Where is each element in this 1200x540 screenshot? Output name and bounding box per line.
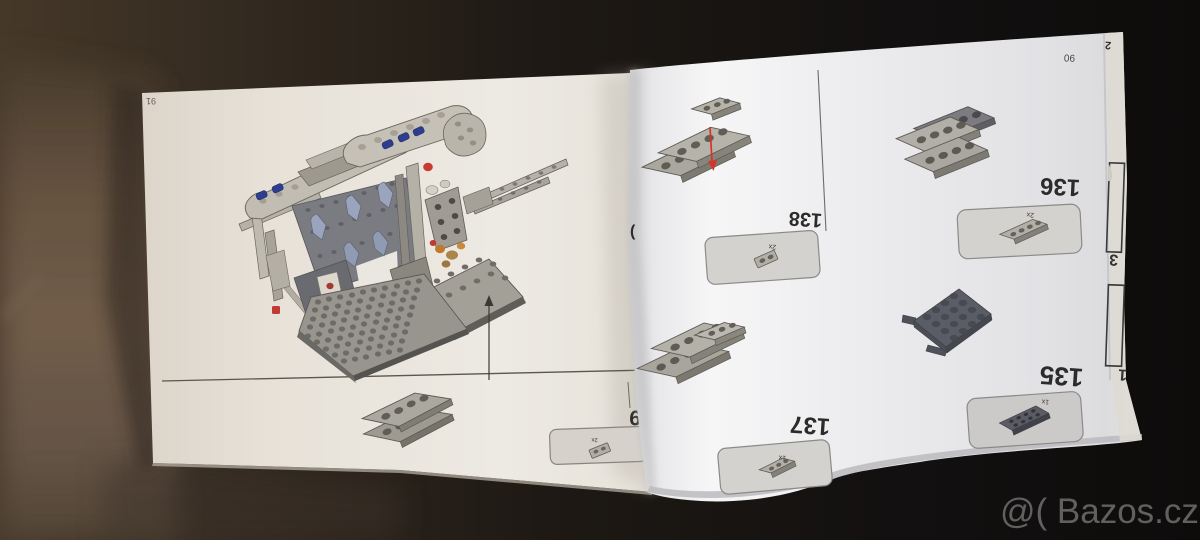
svg-text:1x: 1x <box>778 453 786 461</box>
svg-text:137: 137 <box>789 410 831 440</box>
svg-text:2x: 2x <box>591 436 598 442</box>
svg-text:135: 135 <box>1039 360 1084 393</box>
svg-text:(: ( <box>630 223 636 240</box>
svg-text:136: 136 <box>1039 172 1080 201</box>
svg-text:1x: 1x <box>1041 397 1049 405</box>
svg-text:90: 90 <box>1063 51 1075 63</box>
svg-text:3: 3 <box>1109 250 1119 268</box>
svg-text:@( Bazos.cz: @( Bazos.cz <box>1000 492 1199 531</box>
svg-text:138: 138 <box>788 207 823 231</box>
svg-text:91: 91 <box>146 96 156 106</box>
svg-text:2x: 2x <box>1026 211 1034 218</box>
svg-text:1: 1 <box>1118 365 1128 383</box>
svg-text:2: 2 <box>1105 39 1112 51</box>
svg-text:2x: 2x <box>768 242 776 250</box>
